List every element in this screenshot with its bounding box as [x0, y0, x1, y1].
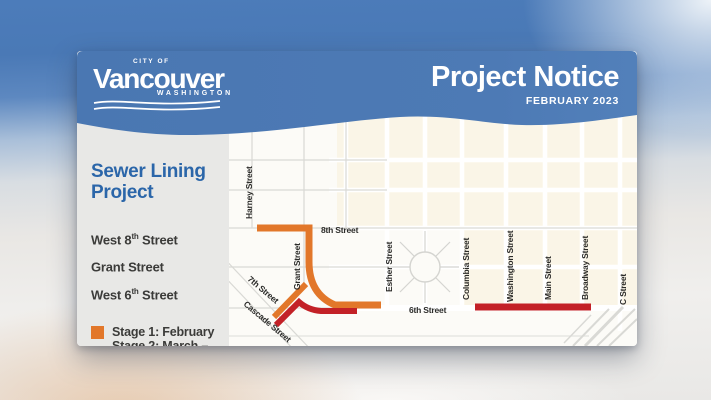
screenshot-root: { "header": { "logo": { "city_of": "CITY…	[0, 0, 711, 400]
notice-header: Project Notice FEBRUARY 2023	[431, 62, 619, 107]
label-main-street: Main Street	[543, 256, 553, 300]
street-list: West 8th Street Grant Street West 6th St…	[91, 225, 219, 307]
project-title: Sewer Lining Project	[91, 161, 219, 203]
notice-title: Project Notice	[431, 62, 619, 92]
label-grant-street: Grant Street	[292, 243, 302, 290]
stage2-label: Stage 2: March – April	[112, 339, 219, 346]
logo-vancouver-text: Vancouver	[93, 65, 243, 92]
label-columbia-street: Columbia Street	[461, 237, 471, 300]
stage1-color-swatch	[91, 326, 104, 339]
project-notice-card: Sewer Lining Project West 8th Street Gra…	[77, 51, 637, 346]
street-item-west-6th: West 6th Street	[91, 280, 219, 307]
street-item-west-8th: West 8th Street	[91, 225, 219, 252]
label-8th-street: 8th Street	[321, 225, 359, 235]
label-broadway-street: Broadway Street	[580, 236, 590, 300]
street-item-grant: Grant Street	[91, 252, 219, 279]
label-c-street: C Street	[618, 274, 628, 305]
label-6th-street: 6th Street	[409, 305, 447, 315]
project-title-line1: Sewer Lining	[91, 161, 219, 182]
city-of-vancouver-logo: CITY OF Vancouver WASHINGTON	[93, 58, 243, 115]
legend: Stage 1: February Stage 2: March – April	[91, 322, 219, 346]
project-title-line2: Project	[91, 182, 219, 203]
notice-date: FEBRUARY 2023	[431, 95, 619, 107]
label-washington-street: Washington Street	[505, 230, 515, 302]
label-harney-street: Harney Street	[244, 166, 254, 219]
label-esther-street: Esther Street	[384, 241, 394, 292]
logo-wave-icon	[93, 99, 221, 115]
legend-row-stage2: Stage 2: March – April	[91, 343, 219, 346]
stage1-label: Stage 1: February	[112, 325, 214, 339]
